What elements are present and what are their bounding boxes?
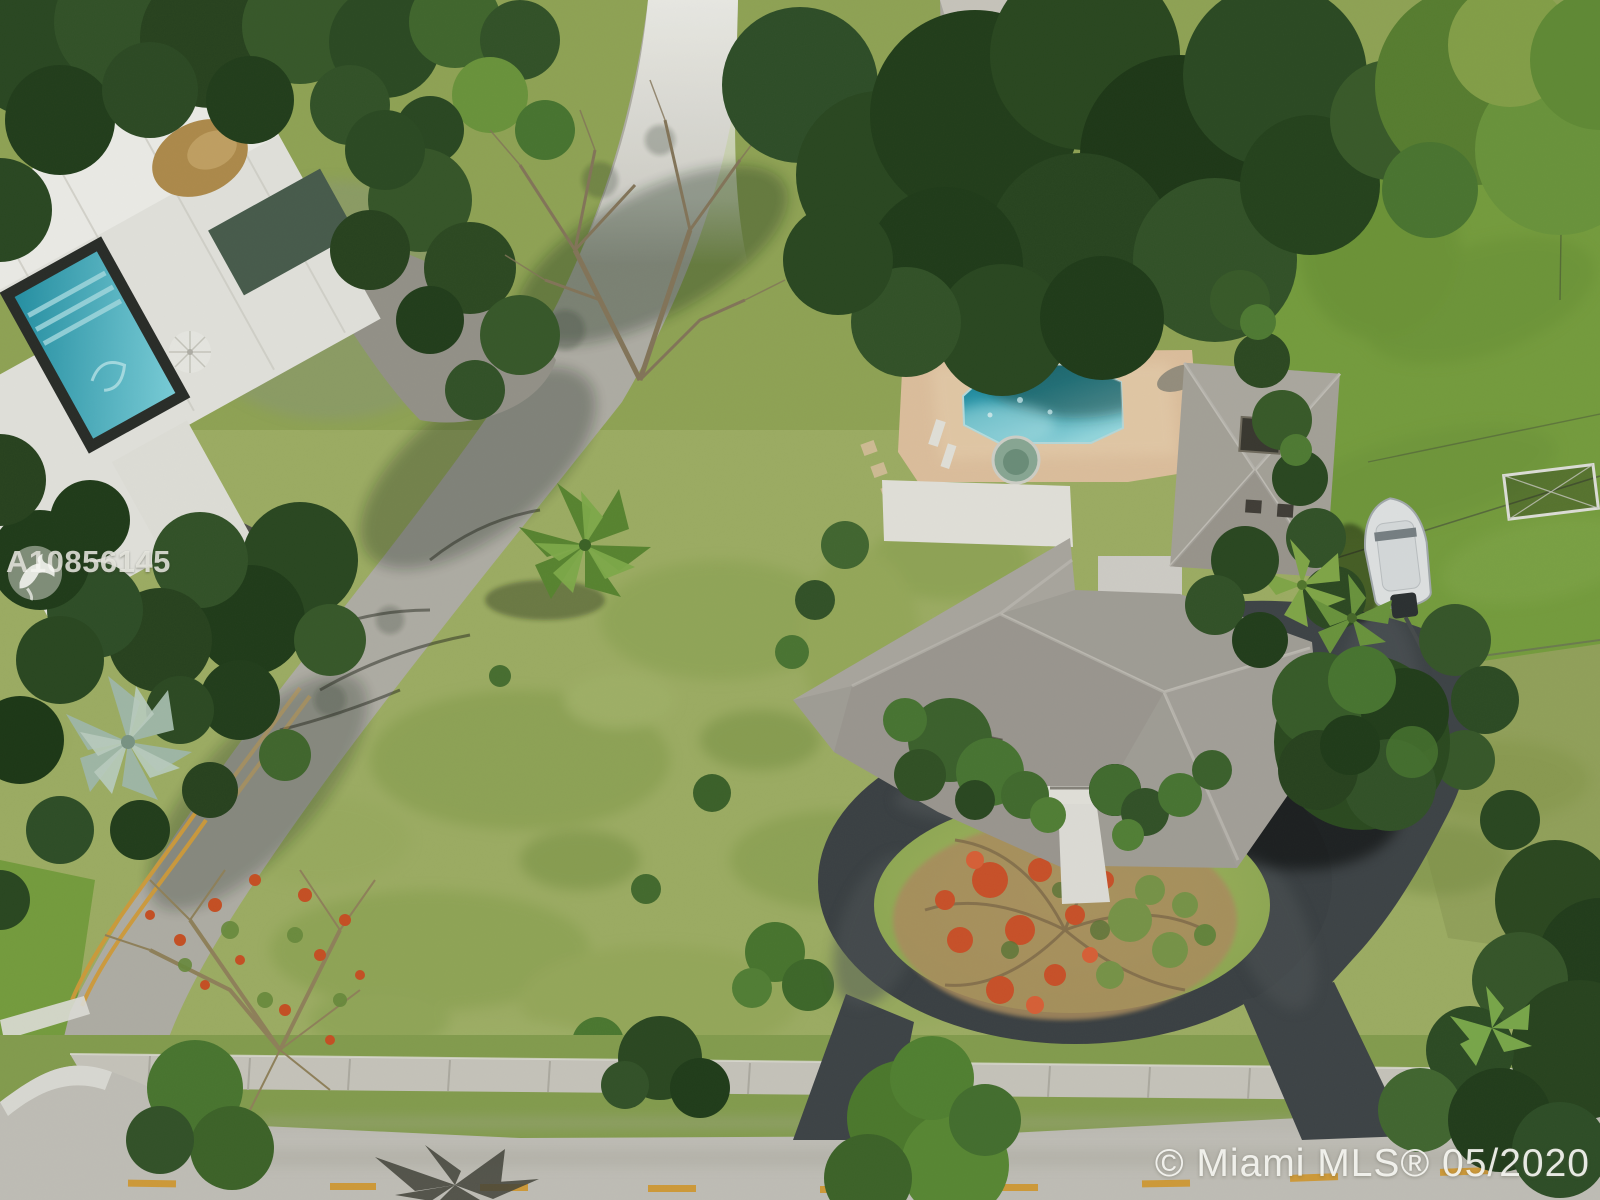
aerial-photo-canvas xyxy=(0,0,1600,1200)
mls-watermark: A10856145 xyxy=(6,544,171,580)
aerial-photo: A10856145 © Miami MLS® 05/2020 xyxy=(0,0,1600,1200)
copyright-watermark: © Miami MLS® 05/2020 xyxy=(1155,1142,1590,1186)
bird-logo-icon xyxy=(6,544,64,602)
color-cast xyxy=(0,0,1600,1200)
